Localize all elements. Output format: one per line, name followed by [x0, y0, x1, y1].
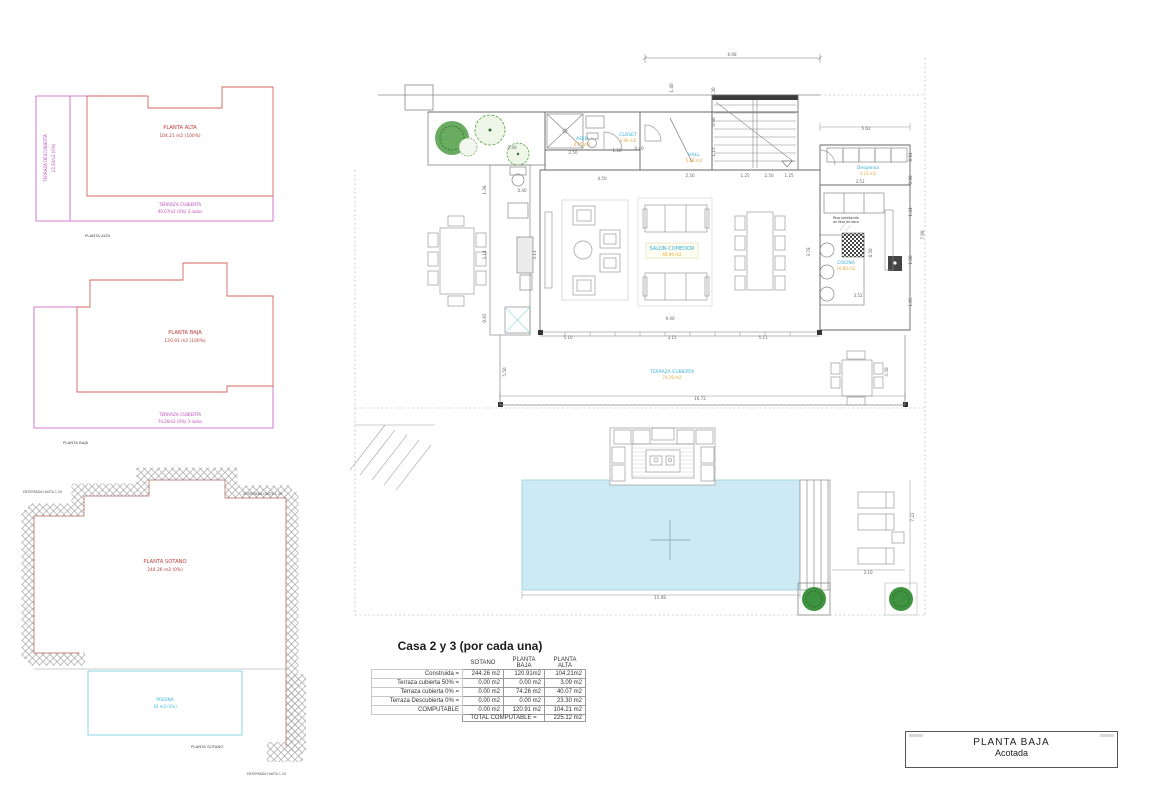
room-area-label: 16.80 m2 — [836, 266, 856, 271]
sotano-piscina-area: 40 m2 (0%) — [153, 704, 177, 709]
planter-tree-right — [885, 583, 917, 615]
dim-label: 1.15 — [711, 147, 716, 157]
dim-label: 3.10 — [863, 570, 873, 575]
dim-label: 5.11 — [758, 335, 768, 340]
summary-cell: 104.21 m2 — [545, 706, 586, 715]
room-area-label: 1.90 m2 — [620, 138, 637, 143]
summary-row-label: Terraza cubierta 0% = — [372, 688, 463, 697]
alta-terraza-descubierta-label: TERRAZA DESCUBIERTA — [43, 134, 48, 183]
baja-room-area: 120.91 m2 (100%) — [164, 338, 205, 344]
dim-label: 16.72 — [694, 396, 706, 401]
lounge-armchair-group — [545, 200, 628, 300]
summary-total-label: TOTAL COMPUTABLE = — [463, 715, 545, 722]
alta-caption: PLANTA ALTA — [85, 233, 111, 238]
summary-cell: 244.26 m2 — [463, 670, 504, 679]
dim-label: 0.91 — [908, 152, 913, 162]
alta-terraza-cubierta-label: TERRAZA CUBIERTA — [158, 202, 201, 208]
title-block-mark-right — [1100, 734, 1114, 737]
title-block-mark-left — [909, 734, 923, 737]
sotano-room-area: 244.26 m2 (0%) — [147, 567, 183, 573]
summary-cell: 40.07 m2 — [545, 688, 586, 697]
plan-notes: Para ventilaciónen fase de obra — [833, 216, 859, 224]
room-labels: ASEO4.25 m2CLOSET1.90 m2HALL5.88 m2Despe… — [574, 132, 880, 380]
title-block-line1: PLANTA BAJA — [906, 737, 1117, 748]
summary-cell: 104.21m2 — [545, 670, 586, 679]
sotano-caption: PLANTA SOTANO — [191, 744, 223, 749]
room-area-label: 4.25 m2 — [574, 142, 591, 147]
dim-label: 3.15 — [667, 335, 677, 340]
dim-label: 5.50 — [884, 367, 889, 377]
title-block-line2: Acotada — [906, 748, 1117, 758]
dining-table-group — [735, 212, 785, 290]
dim-label: 0.40 — [517, 188, 527, 193]
dim-label: 1.88 — [908, 255, 913, 265]
summary-cell: 0.00 m2 — [504, 697, 545, 706]
dim-label: 5.62 — [861, 126, 871, 131]
summary-cell: 0.00 m2 — [463, 697, 504, 706]
dim-label: 7.09 — [920, 230, 925, 240]
room-area-label: 5.88 m2 — [686, 158, 703, 163]
driveway-hatch — [350, 425, 435, 490]
swimming-pool — [522, 480, 800, 590]
summary-row-label: Construida = — [372, 670, 463, 679]
room-area-label: 74.26 m2 — [662, 375, 682, 380]
summary-row-label: Terraza Descubierta 0% = — [372, 697, 463, 706]
dim-label: 4.50 — [597, 176, 607, 181]
dim-label: 1.60 — [612, 148, 622, 153]
summary-row-label: COMPUTABLE — [372, 706, 463, 715]
dim-label: 5.10 — [563, 335, 573, 340]
terrace-band — [500, 335, 905, 405]
dim-label: 9.40 — [665, 316, 675, 321]
sotano-walls — [28, 474, 303, 752]
dim-label: 2.50 — [685, 173, 695, 178]
title-block: PLANTA BAJA Acotada — [905, 731, 1118, 768]
dim-label: 3.52 — [853, 293, 863, 298]
dim-label: 0.90 — [908, 175, 913, 185]
summary-cell: 0.00 m2 — [463, 688, 504, 697]
dim-label: 1.44 — [908, 207, 913, 217]
alta-room-area: 104.21 m2 (100%) — [159, 133, 200, 139]
summary-total-value: 225.12 m2 — [545, 715, 586, 722]
dim-label: 0.65 — [482, 313, 487, 323]
kitchen-island-hatch — [842, 233, 864, 257]
summary-table: SOTANOPLANTA BAJAPLANTA ALTAConstruida =… — [371, 657, 586, 722]
note-label: en fase de obra — [833, 220, 859, 224]
sotano-note-bottom-right: ENTERRADA HASTA 1.20 — [247, 772, 286, 776]
kitchen-fixtures — [820, 210, 902, 305]
sun-loungers — [858, 492, 904, 564]
summary-cell: 0.00 m2 — [463, 679, 504, 688]
summary-col-header: PLANTA BAJA — [504, 657, 545, 670]
alta-terraza-descubierta-area: 23.30m2 (0%) — [51, 143, 56, 172]
dim-label: 0.40 — [507, 145, 517, 150]
baja-terraza-cubierta-area: 74.26m2 (0%) 3 lados — [158, 419, 202, 424]
summary-cell: 74.26 m2 — [504, 688, 545, 697]
staircase — [712, 95, 798, 170]
schematic-planta-sotano: PLANTA SOTANO 244.26 m2 (0%) PISCINA 40 … — [15, 462, 335, 792]
dim-label: 2.50 — [764, 173, 774, 178]
dim-label: 7.22 — [910, 512, 915, 522]
summary-table-title: Casa 2 y 3 (por cada una) — [372, 639, 568, 653]
dim-label: 0.90 — [711, 117, 716, 127]
dim-label: 3.52 — [855, 179, 865, 184]
sotano-note-top-left: ENTERRADA HASTA 1.20 — [23, 490, 62, 494]
sotano-piscina-label: PISCINA — [156, 697, 173, 703]
entry-pillar — [405, 85, 433, 110]
sotano-pool-outline — [88, 671, 242, 735]
dim-label: 1.25 — [784, 173, 794, 178]
main-floor-plan: 6.081.405.622.501.600.404.500.402.501.25… — [340, 30, 940, 630]
summary-cell: 120.91 m2 — [504, 706, 545, 715]
summary-cell: 120.91m2 — [504, 670, 545, 679]
hall-room — [645, 118, 692, 162]
dim-label: 0.40 — [634, 146, 644, 151]
outdoor-dining-left — [428, 216, 486, 306]
baja-caption: PLANTA BAJA — [63, 440, 89, 445]
sotano-note-top-right: ENTERRADA HASTA 1.20 — [243, 492, 282, 496]
alta-terraza-cubierta-area: 40.07m2 (0%) 3 lados — [158, 209, 202, 214]
outdoor-lounge-set — [610, 428, 715, 485]
schematic-planta-baja: PLANTA BAJA 120.91 m2 (100%) TERRAZA CUB… — [30, 255, 320, 450]
dim-label: 5.50 — [502, 367, 507, 377]
summary-cell: 3.09 m2 — [545, 679, 586, 688]
schematic-planta-alta: TERRAZA DESCUBIERTA 23.30m2 (0%) PLANTA … — [30, 78, 320, 248]
summary-cell: 0.00 m2 — [504, 679, 545, 688]
dim-label: 2.50 — [568, 150, 578, 155]
dim-label: 3.14 — [482, 250, 487, 260]
outdoor-dining-terrace — [831, 351, 883, 405]
dim-label: 1.05 — [908, 297, 913, 307]
dim-label: 1.40 — [669, 83, 674, 93]
summary-col-header: PLANTA ALTA — [545, 657, 586, 670]
dim-label: 1.36 — [482, 185, 487, 195]
summary-cell: 23.30 m2 — [545, 697, 586, 706]
room-area-label: 3.21 m2 — [860, 171, 877, 176]
dim-label: 1.25 — [740, 173, 750, 178]
baja-terraza-cubierta-label: TERRAZA CUBIERTA — [158, 412, 201, 418]
dim-label: 6.08 — [727, 52, 737, 57]
pool-steps — [800, 480, 830, 590]
dim-label: 15.08 — [654, 595, 666, 600]
sotano-room-label: PLANTA SOTANO — [143, 559, 186, 565]
summary-col-header: SOTANO — [463, 657, 504, 670]
dim-label: 1.30 — [711, 87, 716, 97]
baja-terraza-outline — [34, 307, 273, 428]
despensa-cabinets — [824, 148, 907, 213]
alta-terraza-outline — [36, 96, 273, 221]
dim-label: 3.78 — [806, 247, 811, 257]
summary-row-label: Terraza cubierta 50% = — [372, 679, 463, 688]
baja-room-label: PLANTA BAJA — [168, 330, 202, 336]
alta-room-label: PLANTA ALTA — [163, 125, 197, 131]
drawing-sheet: TERRAZA DESCUBIERTA 23.30m2 (0%) PLANTA … — [0, 0, 1151, 800]
summary-cell: 0.00 m2 — [463, 706, 504, 715]
dim-label: 3.13 — [532, 250, 537, 260]
alta-room-outline — [87, 87, 273, 196]
baja-room-outline — [77, 263, 273, 392]
entry-planter — [428, 112, 545, 165]
room-area-label: 48.96 m2 — [662, 252, 682, 257]
dim-label: 4.50 — [868, 248, 873, 258]
